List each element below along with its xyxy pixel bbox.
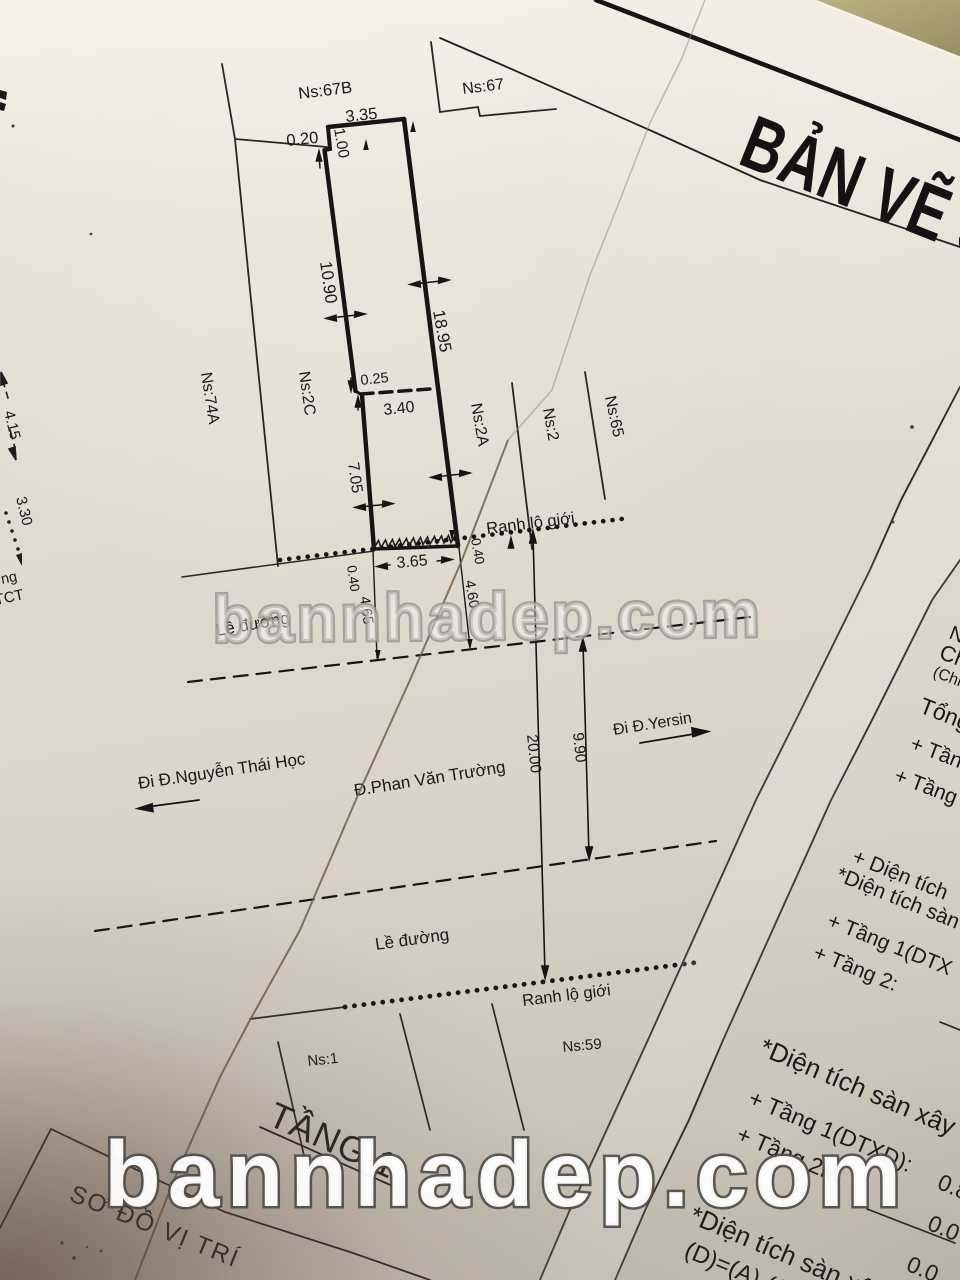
svg-text:bannhadep.com: bannhadep.com [212, 576, 763, 656]
svg-text:bannhadep.com: bannhadep.com [104, 1122, 908, 1226]
